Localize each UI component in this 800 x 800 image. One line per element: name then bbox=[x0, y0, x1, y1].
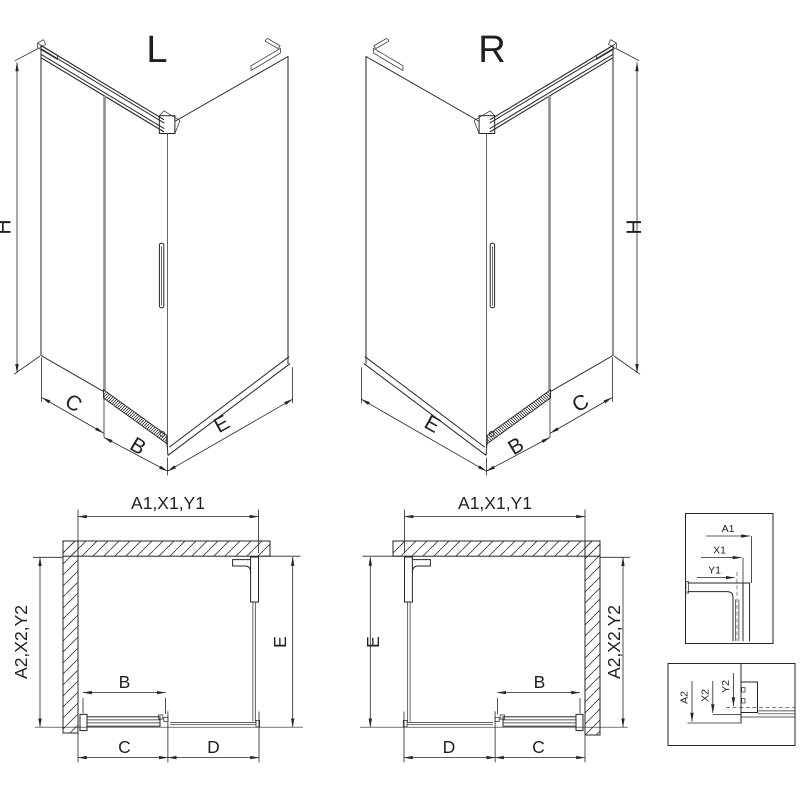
plan-left-dim-bottom-left: C bbox=[118, 737, 131, 757]
detail-top-label-x1: X1 bbox=[713, 545, 726, 557]
plan-left-dim-bottom-right: D bbox=[207, 737, 220, 757]
plan-left-dim-door: B bbox=[119, 672, 131, 692]
plan-left-side-wall bbox=[63, 541, 78, 733]
detail-bottom-rail-profile: A2 X2 Y2 bbox=[668, 664, 795, 746]
plan-right-dim-door: B bbox=[534, 672, 546, 692]
plan-left-dim-side: A2,X2,Y2 bbox=[11, 605, 31, 679]
plan-right-dim-bottom-left: D bbox=[443, 737, 456, 757]
iso-left-dim-height: H bbox=[0, 219, 16, 234]
iso-right-dim-fixed: C bbox=[568, 390, 593, 418]
shower-enclosure-technical-drawing: L H C B E R H C B E A1,X1,Y1 A2,X2,Y2 E … bbox=[0, 0, 800, 800]
plan-right-top-wall bbox=[393, 541, 600, 556]
drawing-canvas: L H C B E R H C B E A1,X1,Y1 A2,X2,Y2 E … bbox=[0, 0, 800, 800]
iso-right-dim-height: H bbox=[623, 219, 646, 234]
iso-view-left: L H C B E bbox=[0, 29, 293, 475]
detail-bottom-label-y2: Y2 bbox=[720, 680, 732, 693]
plan-view-right: A1,X1,Y1 A2,X2,Y2 E B D C bbox=[360, 493, 630, 762]
iso-right-dim-side: E bbox=[420, 411, 443, 438]
detail-top-label-y1: Y1 bbox=[708, 565, 721, 577]
plan-right-side-wall bbox=[585, 541, 600, 735]
iso-left-dim-door: B bbox=[126, 433, 150, 460]
plan-right-dim-bottom-right: C bbox=[532, 737, 545, 757]
iso-right-lineart bbox=[361, 38, 640, 475]
iso-right-dim-door: B bbox=[504, 433, 528, 460]
plan-left-top-wall bbox=[63, 541, 270, 556]
iso-left-title: L bbox=[146, 29, 167, 71]
iso-left-dim-side: E bbox=[210, 411, 233, 438]
detail-top-wall-profile: A1 X1 Y1 bbox=[686, 514, 774, 644]
plan-view-left: A1,X1,Y1 A2,X2,Y2 E B C D bbox=[11, 493, 303, 762]
iso-left-dim-fixed: C bbox=[61, 390, 86, 418]
plan-left-dim-depth: E bbox=[270, 636, 290, 648]
iso-left-lineart bbox=[14, 38, 293, 475]
plan-right-dim-side: A2,X2,Y2 bbox=[604, 605, 624, 679]
iso-right-title: R bbox=[478, 29, 505, 71]
plan-right-dim-depth: E bbox=[363, 636, 383, 648]
detail-top-label-a1: A1 bbox=[722, 523, 735, 535]
iso-view-right: R H C B E bbox=[361, 29, 646, 475]
detail-bottom-label-a2: A2 bbox=[679, 691, 691, 704]
detail-bottom-label-x2: X2 bbox=[700, 689, 712, 702]
plan-left-dim-top: A1,X1,Y1 bbox=[131, 493, 205, 513]
plan-right-dim-top: A1,X1,Y1 bbox=[458, 493, 532, 513]
